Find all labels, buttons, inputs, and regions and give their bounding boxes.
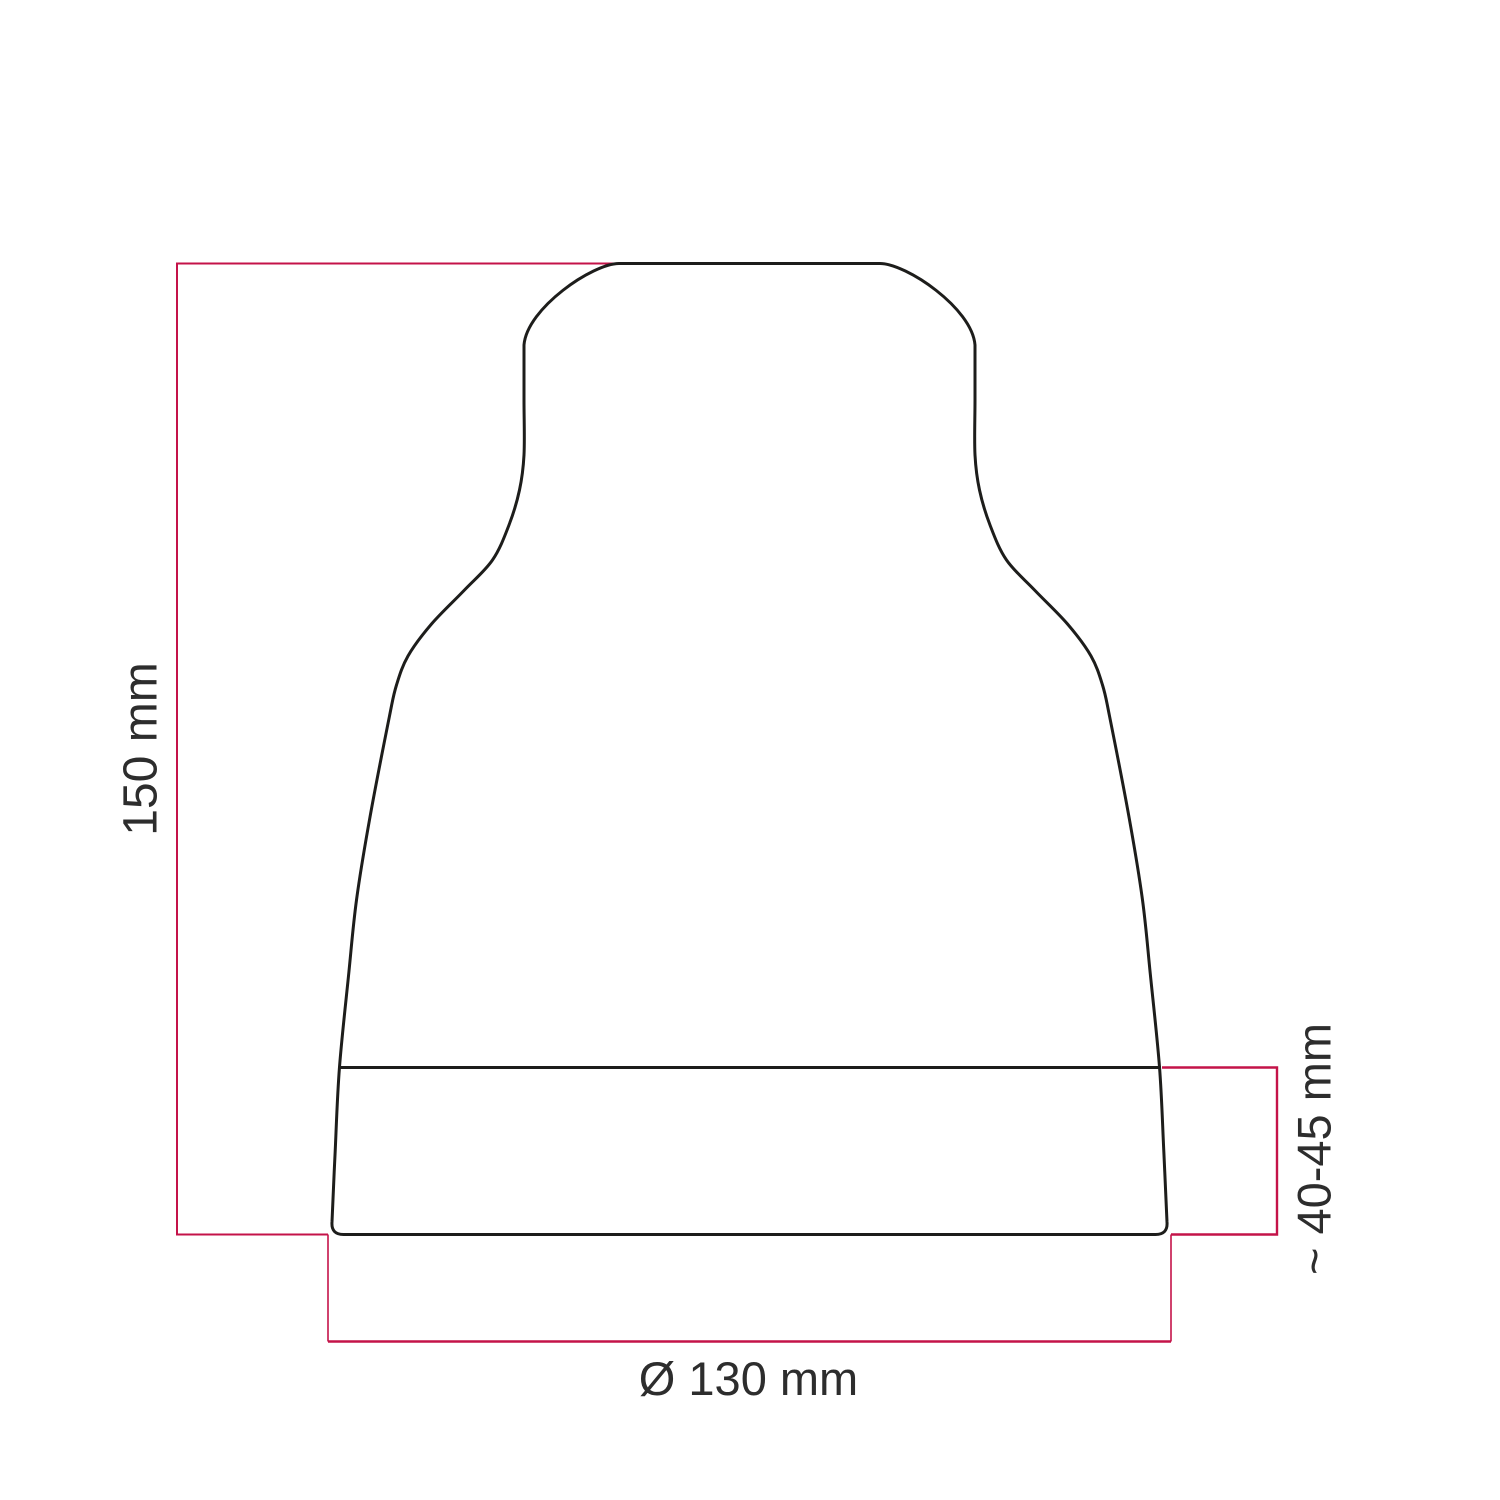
svg-text:150 mm: 150 mm [115,662,168,835]
svg-text:~ 40-45 mm: ~ 40-45 mm [1287,1023,1340,1275]
svg-text:Ø 130 mm: Ø 130 mm [639,1352,858,1405]
